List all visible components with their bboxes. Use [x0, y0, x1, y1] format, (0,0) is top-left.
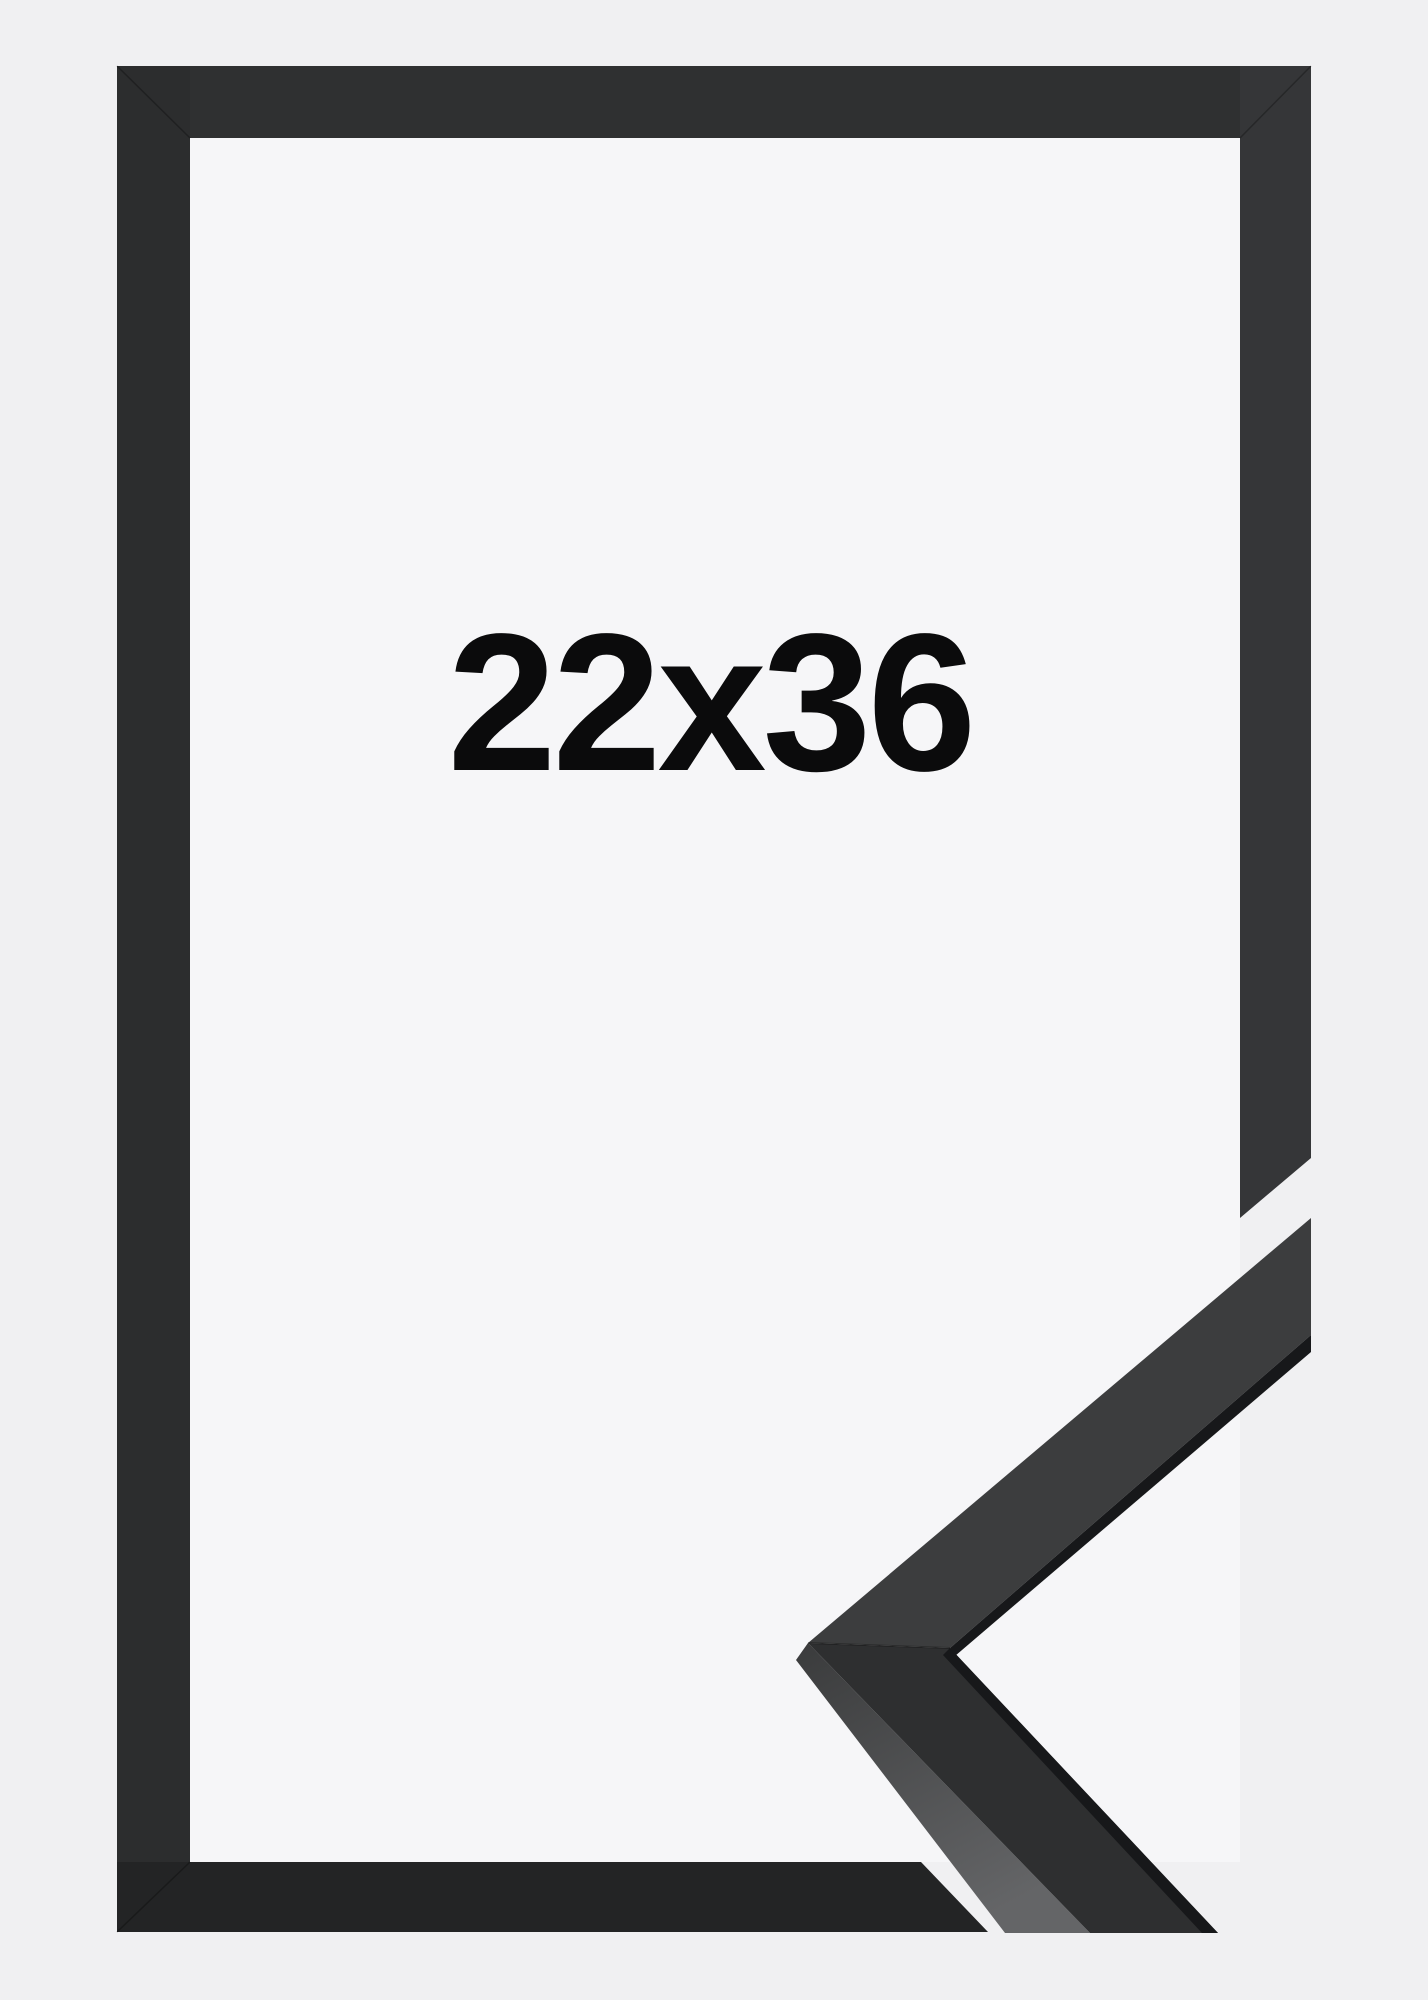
- frame-border-right: [1240, 66, 1311, 1218]
- frame-border-bottom: [117, 1862, 988, 1932]
- size-label: 22x36: [447, 593, 972, 812]
- frame-opening: [190, 138, 1240, 1862]
- product-photo: 22x36: [0, 0, 1428, 2000]
- frame-product-image: 22x36: [0, 0, 1428, 2000]
- frame-border-left: [117, 66, 190, 1932]
- frame-border-top: [117, 66, 1311, 138]
